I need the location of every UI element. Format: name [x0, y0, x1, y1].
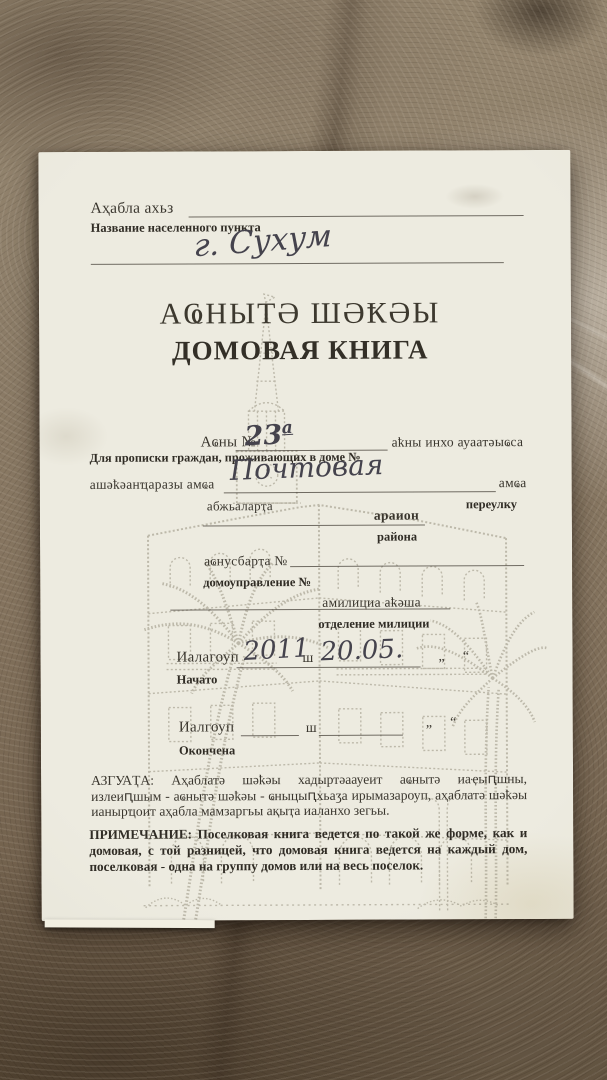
finished-label-russian: Окончена: [179, 743, 235, 758]
finished-quote-marks: „ “: [426, 715, 457, 731]
finished-label-abkhaz: Иалгоуп: [179, 719, 235, 736]
note-abkhaz: АЗГУАҬА: Аҳаблатә шәҟәы хадыртәаауеит аҩ…: [91, 771, 527, 820]
house-number-suffix-abkhaz: аҟны инхо ауаатәыҩса: [392, 434, 524, 451]
photo-background: Аҳабла ахьз Название населенного пункта …: [0, 0, 607, 1080]
house-number-superscript: а: [281, 418, 293, 439]
title-block: АҨНЫТӘ ШӘҞӘЫ ДОМОВАЯ КНИГА: [38, 150, 570, 217]
street-label-abkhaz: ашәҟәанҵаразы амҩа: [90, 476, 215, 493]
title-russian: ДОМОВАЯ КНИГА: [34, 334, 566, 367]
note-russian: ПРИМЕЧАНИЕ: Поселковая книга ведется по …: [89, 825, 527, 875]
house-management-label-abkhaz: аҩнусбарҭа №: [204, 553, 288, 569]
district-label-abkhaz: араион: [374, 508, 419, 524]
started-date-handwritten: 20.05.: [320, 634, 404, 667]
started-label-russian: Начато: [177, 672, 218, 687]
started-label-abkhaz: Иалагоуп: [176, 649, 238, 666]
note-abkhaz-label: АЗГУАҬА:: [91, 773, 154, 788]
street-name-handwritten: Почтовая: [229, 448, 384, 487]
cover-text-layer: Аҳабла ахьз Название населенного пункта …: [38, 150, 573, 921]
fill-line: [241, 723, 299, 736]
title-abkhaz: АҨНЫТӘ ШӘҞӘЫ: [34, 296, 566, 332]
militia-label-russian: отделение милиции: [318, 616, 429, 631]
fill-line: [319, 723, 403, 736]
started-year-handwritten: 2011: [243, 633, 311, 667]
note-abkhaz-text: Аҳаблатә шәҟәы хадыртәаауеит аҩнытә иаҿы…: [91, 771, 527, 819]
started-quote-marks: „ “: [438, 649, 469, 665]
district-label-russian: района: [377, 530, 417, 545]
booklet-cover: Аҳабла ахьз Название населенного пункта …: [38, 150, 573, 921]
house-number-handwritten: 23а: [244, 418, 294, 453]
lane-label-russian: переулку: [466, 497, 517, 512]
finished-year-unit-abkhaz: ш: [306, 721, 317, 737]
street-suffix-abkhaz: амҩа: [499, 475, 527, 491]
fill-line: [290, 552, 524, 567]
note-russian-label: ПРИМЕЧАНИЕ:: [89, 827, 192, 842]
house-management-label-russian: домоуправление №: [203, 575, 311, 590]
militia-label-abkhaz: амилициа аҟәша: [322, 594, 421, 610]
lane-label-abkhaz: абжьаларҭа: [207, 498, 273, 514]
house-number-digits: 23: [244, 419, 283, 452]
started-year-unit-abkhaz: ш: [303, 651, 314, 667]
